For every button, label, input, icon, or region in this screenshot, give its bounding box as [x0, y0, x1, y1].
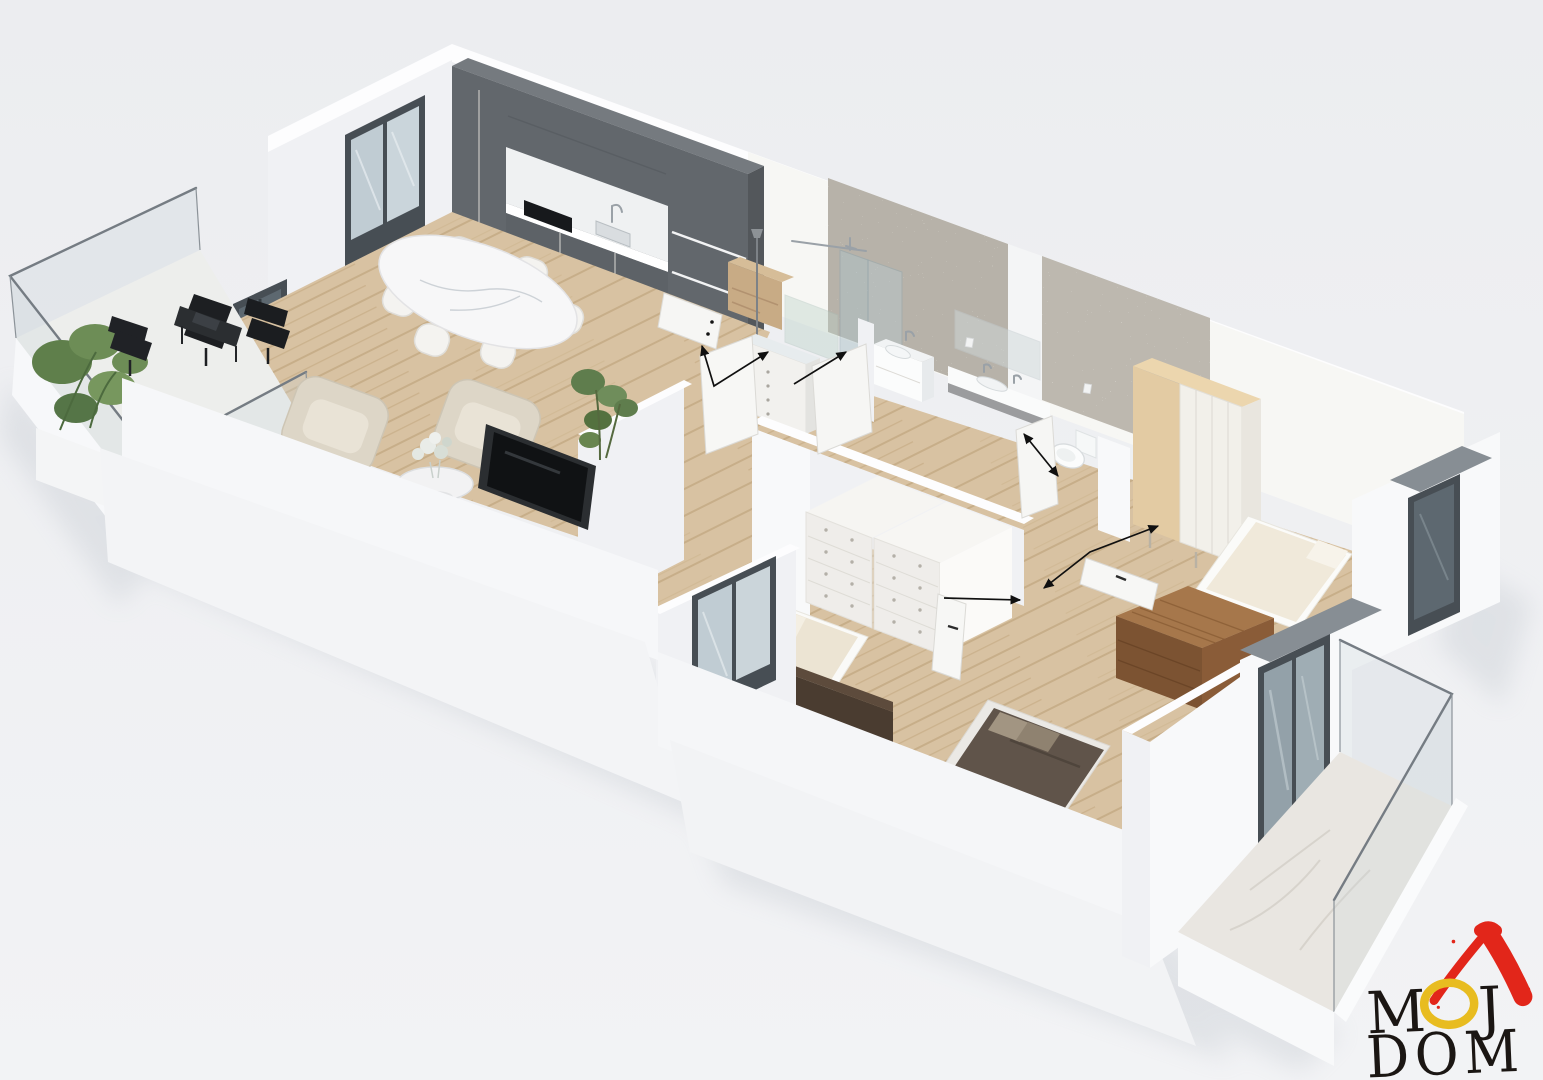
bedroom-right-window-glass	[1414, 484, 1454, 620]
light-switch-2	[1083, 384, 1091, 394]
floorplan-stage: M J DOM	[0, 0, 1543, 1080]
bathroom-wall-pillar	[1008, 244, 1042, 410]
floorplan-render: M J DOM	[0, 0, 1543, 1080]
wall-stub-wc	[1098, 436, 1130, 542]
door-leaf-wc	[1016, 416, 1058, 518]
living-window-glass-right	[387, 106, 419, 222]
living-window-glass-left	[351, 124, 383, 240]
bedroom-left-window-glass-2	[736, 566, 770, 680]
logo-word-dom: DOM	[1365, 1017, 1526, 1080]
light-switch-1	[965, 338, 973, 348]
